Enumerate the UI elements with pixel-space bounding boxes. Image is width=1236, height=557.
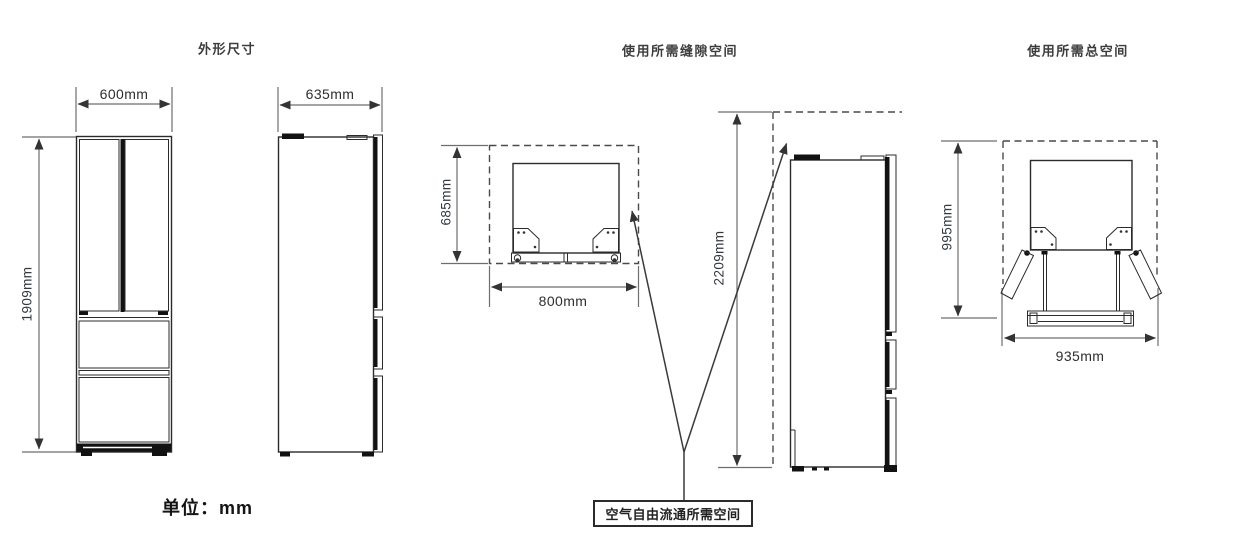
section-title-total: 使用所需总空间 bbox=[1027, 41, 1129, 60]
section-title-outline: 外形尺寸 bbox=[198, 39, 256, 58]
air-circulation-label-box: 空气自由流通所需空间 bbox=[593, 500, 753, 527]
total-space-top-view bbox=[941, 141, 1162, 346]
dim-label-total-depth: 995mm bbox=[940, 203, 955, 250]
fridge-side-view bbox=[278, 87, 383, 457]
installation-dimensions-diagram: 外形尺寸 使用所需缝隙空间 使用所需总空间 600mm 635mm 1909mm… bbox=[0, 0, 1236, 557]
dim-label-clearance-depth: 685mm bbox=[439, 178, 454, 225]
section-title-clearance: 使用所需缝隙空间 bbox=[622, 41, 738, 60]
air-circulation-label: 空气自由流通所需空间 bbox=[605, 504, 740, 523]
air-circulation-callout bbox=[632, 144, 787, 501]
fridge-front-view bbox=[22, 87, 172, 456]
dim-label-clearance-height: 2209mm bbox=[712, 231, 727, 286]
dim-label-height: 1909mm bbox=[20, 267, 35, 322]
unit-note: 单位：mm bbox=[162, 494, 253, 520]
dim-label-total-width: 935mm bbox=[1056, 348, 1105, 364]
clearance-side-view bbox=[718, 112, 902, 472]
dim-label-depth: 635mm bbox=[306, 86, 355, 102]
dim-label-clearance-width: 800mm bbox=[539, 293, 588, 309]
clearance-top-view bbox=[441, 146, 639, 308]
diagram-canvas bbox=[0, 0, 1236, 557]
dim-label-width: 600mm bbox=[100, 86, 149, 102]
